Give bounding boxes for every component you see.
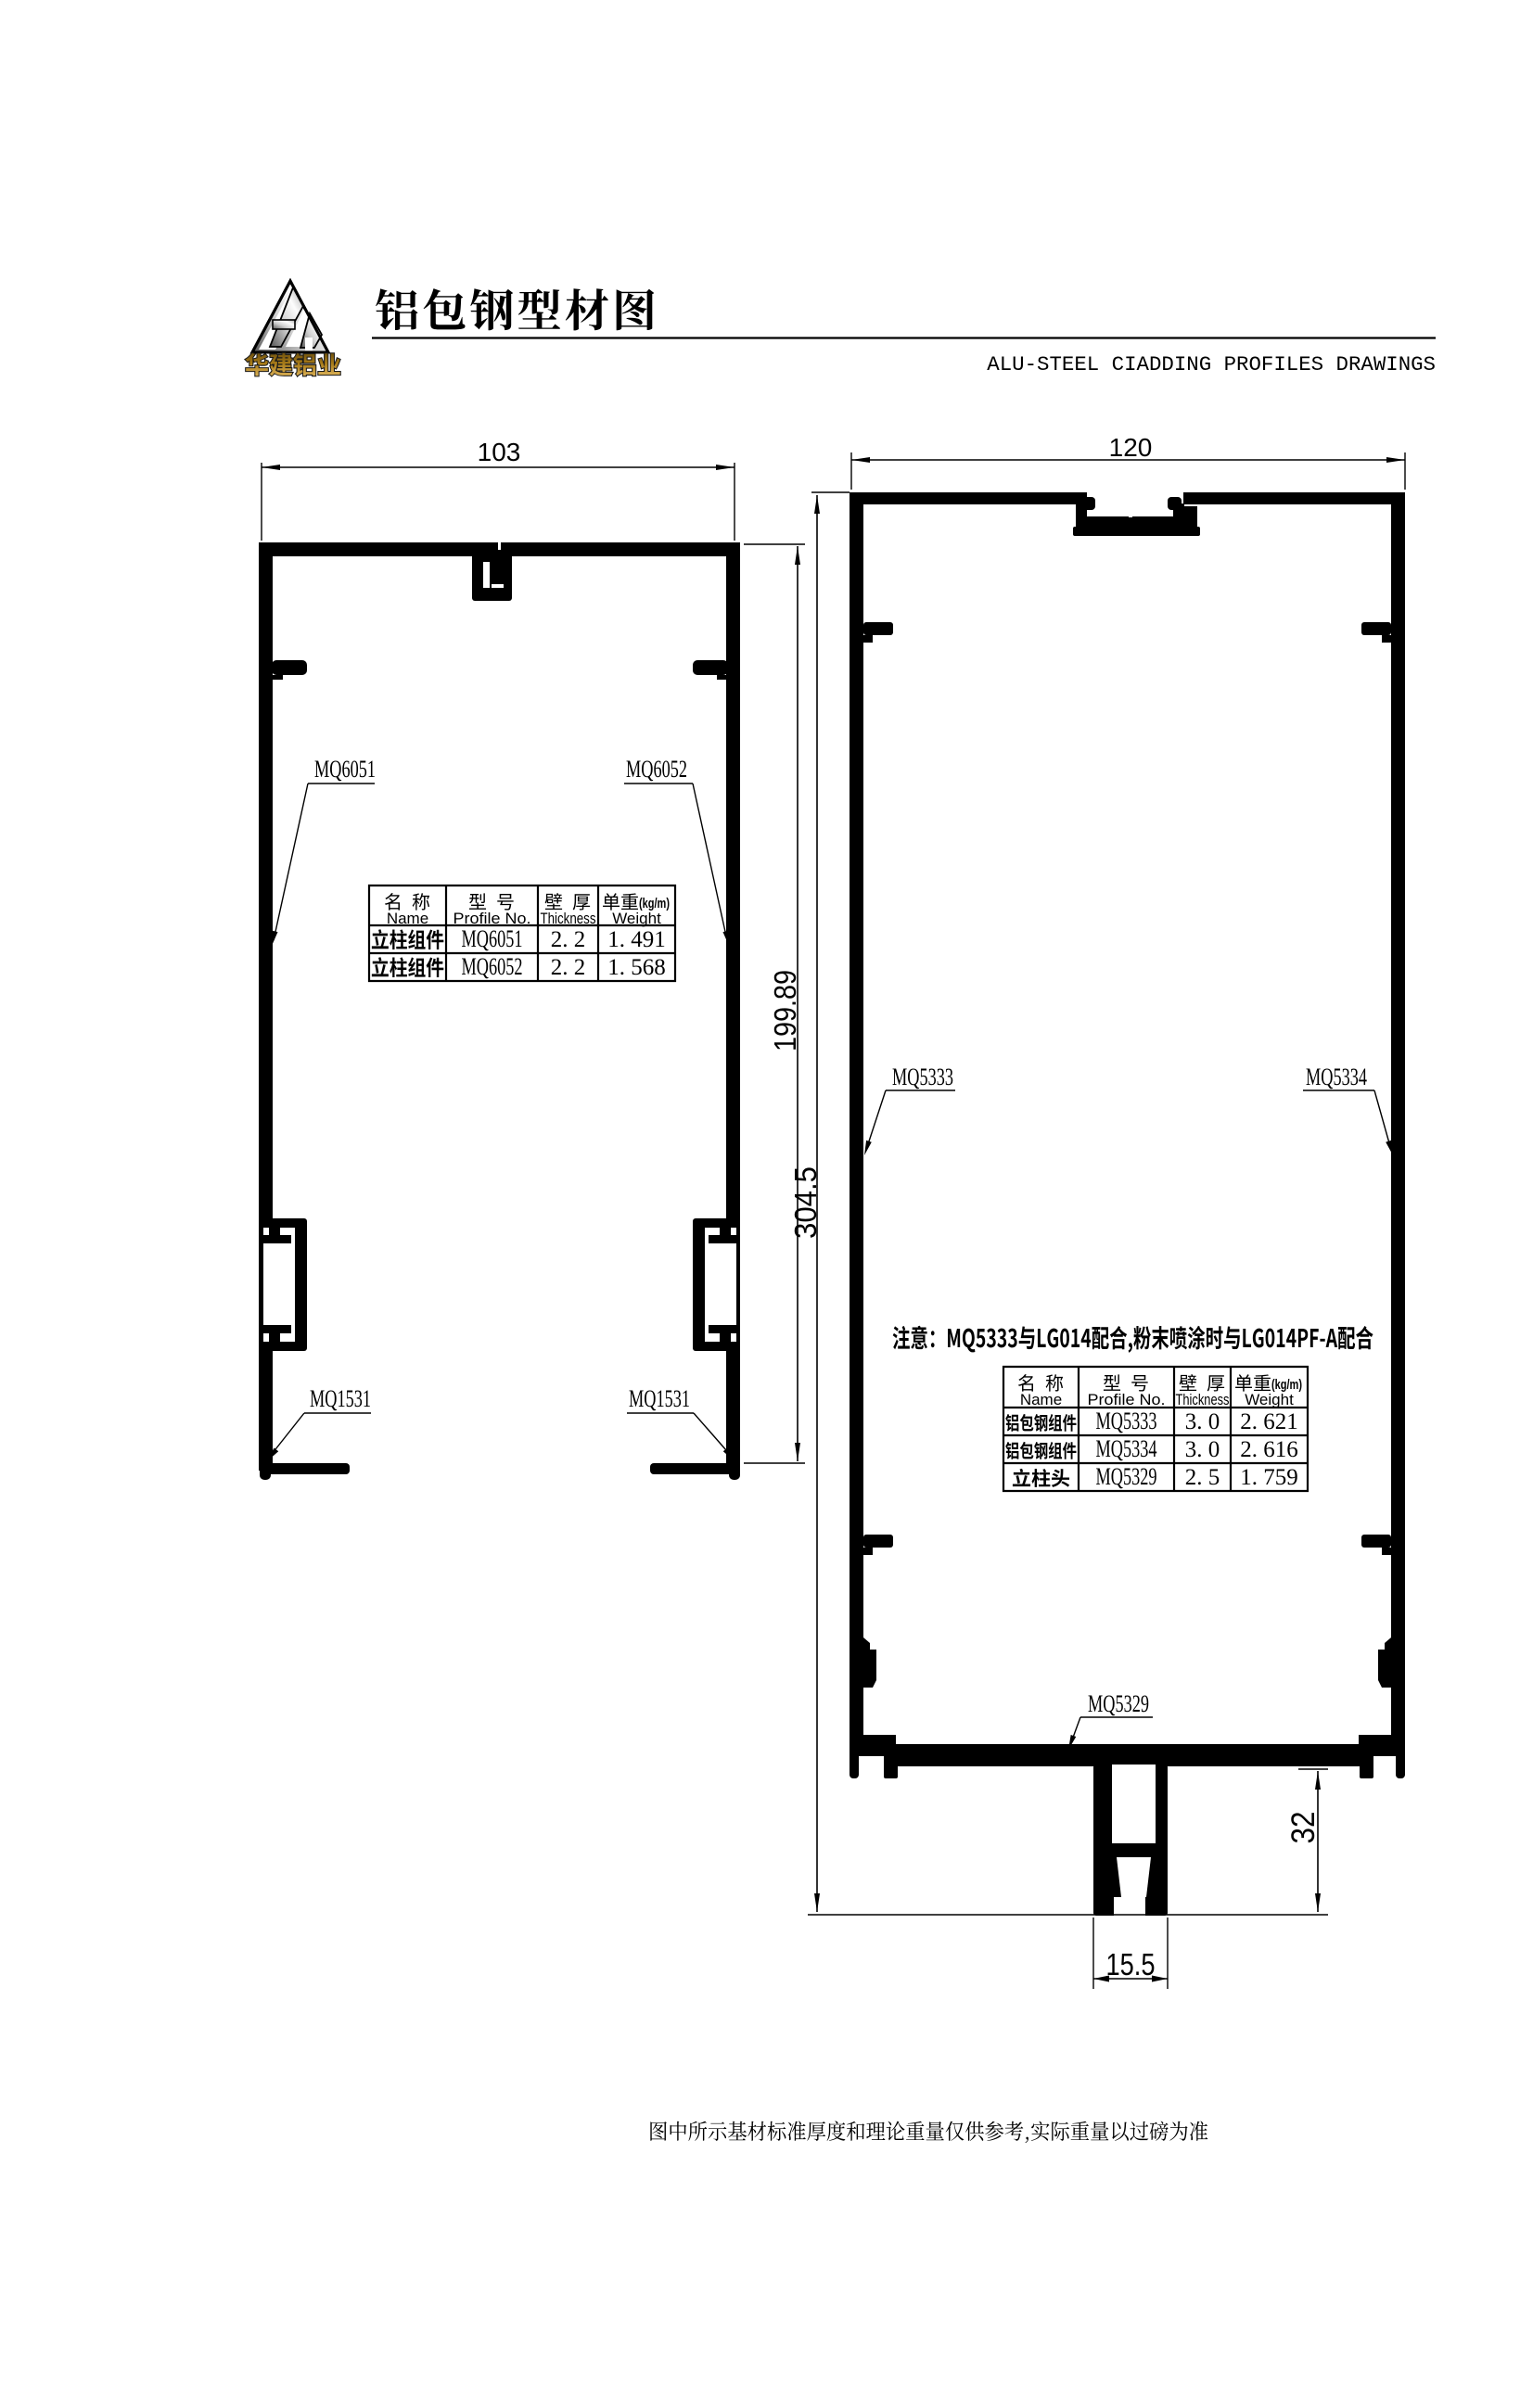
svg-text:120: 120: [1109, 433, 1153, 462]
svg-text:MQ5329: MQ5329: [1088, 1690, 1149, 1717]
svg-text:MQ5334: MQ5334: [1096, 1435, 1157, 1462]
svg-text:MQ5333: MQ5333: [892, 1064, 953, 1090]
svg-text:MQ6052: MQ6052: [626, 756, 687, 783]
svg-text:MQ6051: MQ6051: [462, 925, 523, 952]
svg-text:103: 103: [478, 438, 521, 466]
svg-text:MQ6051: MQ6051: [314, 756, 376, 783]
svg-text:MQ1531: MQ1531: [310, 1385, 371, 1412]
svg-text:ALU-STEEL CIADDING PROFILES DR: ALU-STEEL CIADDING PROFILES DRAWINGS: [987, 352, 1436, 376]
svg-text:Thickness: Thickness: [1176, 1391, 1230, 1408]
svg-text:1. 491: 1. 491: [607, 927, 666, 952]
svg-text:Name: Name: [387, 910, 428, 927]
svg-text:2. 621: 2. 621: [1240, 1409, 1298, 1434]
svg-text:2. 616: 2. 616: [1240, 1437, 1298, 1462]
svg-text:1. 568: 1. 568: [607, 955, 666, 980]
svg-text:1. 759: 1. 759: [1240, 1465, 1298, 1490]
svg-text:32: 32: [1285, 1812, 1322, 1844]
svg-text:Name: Name: [1020, 1391, 1062, 1408]
svg-text:3. 0: 3. 0: [1185, 1437, 1220, 1462]
svg-text:MQ5329: MQ5329: [1096, 1463, 1157, 1490]
svg-text:Weight: Weight: [612, 910, 661, 927]
svg-text:2. 5: 2. 5: [1185, 1465, 1220, 1490]
svg-text:Weight: Weight: [1245, 1391, 1294, 1408]
svg-text:2. 2: 2. 2: [551, 927, 586, 952]
svg-text:MQ5333: MQ5333: [1096, 1408, 1157, 1434]
svg-text:304.5: 304.5: [788, 1166, 823, 1239]
svg-text:Profile No.: Profile No.: [1088, 1391, 1166, 1408]
svg-text:2. 2: 2. 2: [551, 955, 586, 980]
svg-text:15.5: 15.5: [1106, 1947, 1156, 1981]
svg-text:MQ6052: MQ6052: [462, 953, 523, 980]
svg-text:MQ5334: MQ5334: [1306, 1064, 1367, 1090]
svg-text:199.89: 199.89: [768, 970, 802, 1051]
svg-text:3. 0: 3. 0: [1185, 1409, 1220, 1434]
svg-text:Thickness: Thickness: [541, 910, 596, 927]
svg-text:MQ1531: MQ1531: [629, 1385, 690, 1412]
